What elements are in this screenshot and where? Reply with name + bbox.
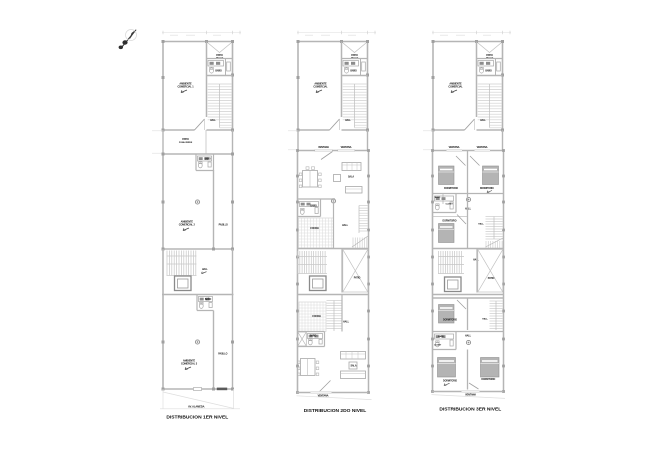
svg-text:DISTRIBUCION 3ER NIVEL: DISTRIBUCION 3ER NIVEL <box>439 407 501 413</box>
svg-text:VENTANA: VENTANA <box>465 393 476 396</box>
svg-text:AV. ALAMEDA: AV. ALAMEDA <box>188 405 205 409</box>
svg-text:HALL: HALL <box>465 335 472 338</box>
svg-text:VENTANA: VENTANA <box>449 146 460 149</box>
svg-text:PATIO: PATIO <box>351 54 358 57</box>
svg-text:BAÑO: BAÑO <box>204 157 211 160</box>
svg-text:PASILLO: PASILLO <box>218 353 227 356</box>
svg-text:DORMITORIO: DORMITORIO <box>443 381 457 383</box>
svg-text:COMERCIAL 1: COMERCIAL 1 <box>177 86 194 89</box>
svg-text:SALA: SALA <box>350 364 356 367</box>
svg-text:DORMITORIO: DORMITORIO <box>480 188 494 190</box>
svg-text:PATIO: PATIO <box>486 54 493 57</box>
svg-text:BAÑO: BAÑO <box>215 69 222 72</box>
svg-text:HALL: HALL <box>480 119 486 122</box>
svg-text:COCINA: COCINA <box>312 315 321 318</box>
svg-text:BAÑO: BAÑO <box>438 335 444 338</box>
svg-text:DORMITORIO: DORMITORIO <box>481 379 495 381</box>
svg-text:PASILLO: PASILLO <box>219 223 228 226</box>
svg-text:COMERCIAL: COMERCIAL <box>448 86 463 89</box>
svg-text:BAÑO: BAÑO <box>205 298 212 301</box>
svg-text:BAÑO: BAÑO <box>485 69 492 72</box>
svg-text:VENTANA: VENTANA <box>341 146 352 149</box>
svg-text:HALL: HALL <box>202 268 208 271</box>
svg-text:DORMITORIO: DORMITORIO <box>444 188 458 190</box>
svg-text:CLOSET: CLOSET <box>434 344 442 346</box>
svg-text:DISTRIBUCION 2DO NIVEL: DISTRIBUCION 2DO NIVEL <box>304 408 367 414</box>
svg-text:VENTANA: VENTANA <box>318 146 329 149</box>
svg-text:DISTRIBUCION 1ER NIVEL: DISTRIBUCION 1ER NIVEL <box>166 414 228 420</box>
svg-text:BAÑO: BAÑO <box>310 204 317 207</box>
svg-text:PATIO: PATIO <box>182 138 189 141</box>
svg-text:ZONA VERDE: ZONA VERDE <box>179 141 193 144</box>
svg-text:VENTANA: VENTANA <box>477 146 488 149</box>
svg-text:HALL: HALL <box>478 222 484 225</box>
svg-text:HALL: HALL <box>210 119 216 122</box>
svg-text:HALL: HALL <box>345 119 351 122</box>
svg-text:DORMITORIO: DORMITORIO <box>443 221 457 223</box>
svg-text:COCINA: COCINA <box>310 227 319 230</box>
svg-text:BAÑO: BAÑO <box>310 335 317 338</box>
svg-text:COMERCIAL: COMERCIAL <box>313 86 328 89</box>
svg-text:HALL: HALL <box>482 318 488 321</box>
svg-text:PATIO: PATIO <box>488 277 495 280</box>
svg-text:CLOSET: CLOSET <box>445 204 453 206</box>
svg-text:BAÑO: BAÑO <box>350 69 357 72</box>
svg-text:PATIO: PATIO <box>216 54 223 57</box>
svg-text:HALL: HALL <box>343 320 350 323</box>
svg-text:HALL: HALL <box>342 224 349 227</box>
svg-text:COMERCIAL 2: COMERCIAL 2 <box>179 223 196 226</box>
svg-text:COMERCIAL 3: COMERCIAL 3 <box>181 363 198 366</box>
svg-text:SALA: SALA <box>348 176 354 179</box>
svg-text:BAÑO: BAÑO <box>435 196 441 199</box>
svg-text:PATIO: PATIO <box>354 277 361 280</box>
svg-text:HALL: HALL <box>465 208 472 211</box>
svg-text:DORMITORIO: DORMITORIO <box>443 320 457 322</box>
svg-text:HALL: HALL <box>473 259 479 262</box>
